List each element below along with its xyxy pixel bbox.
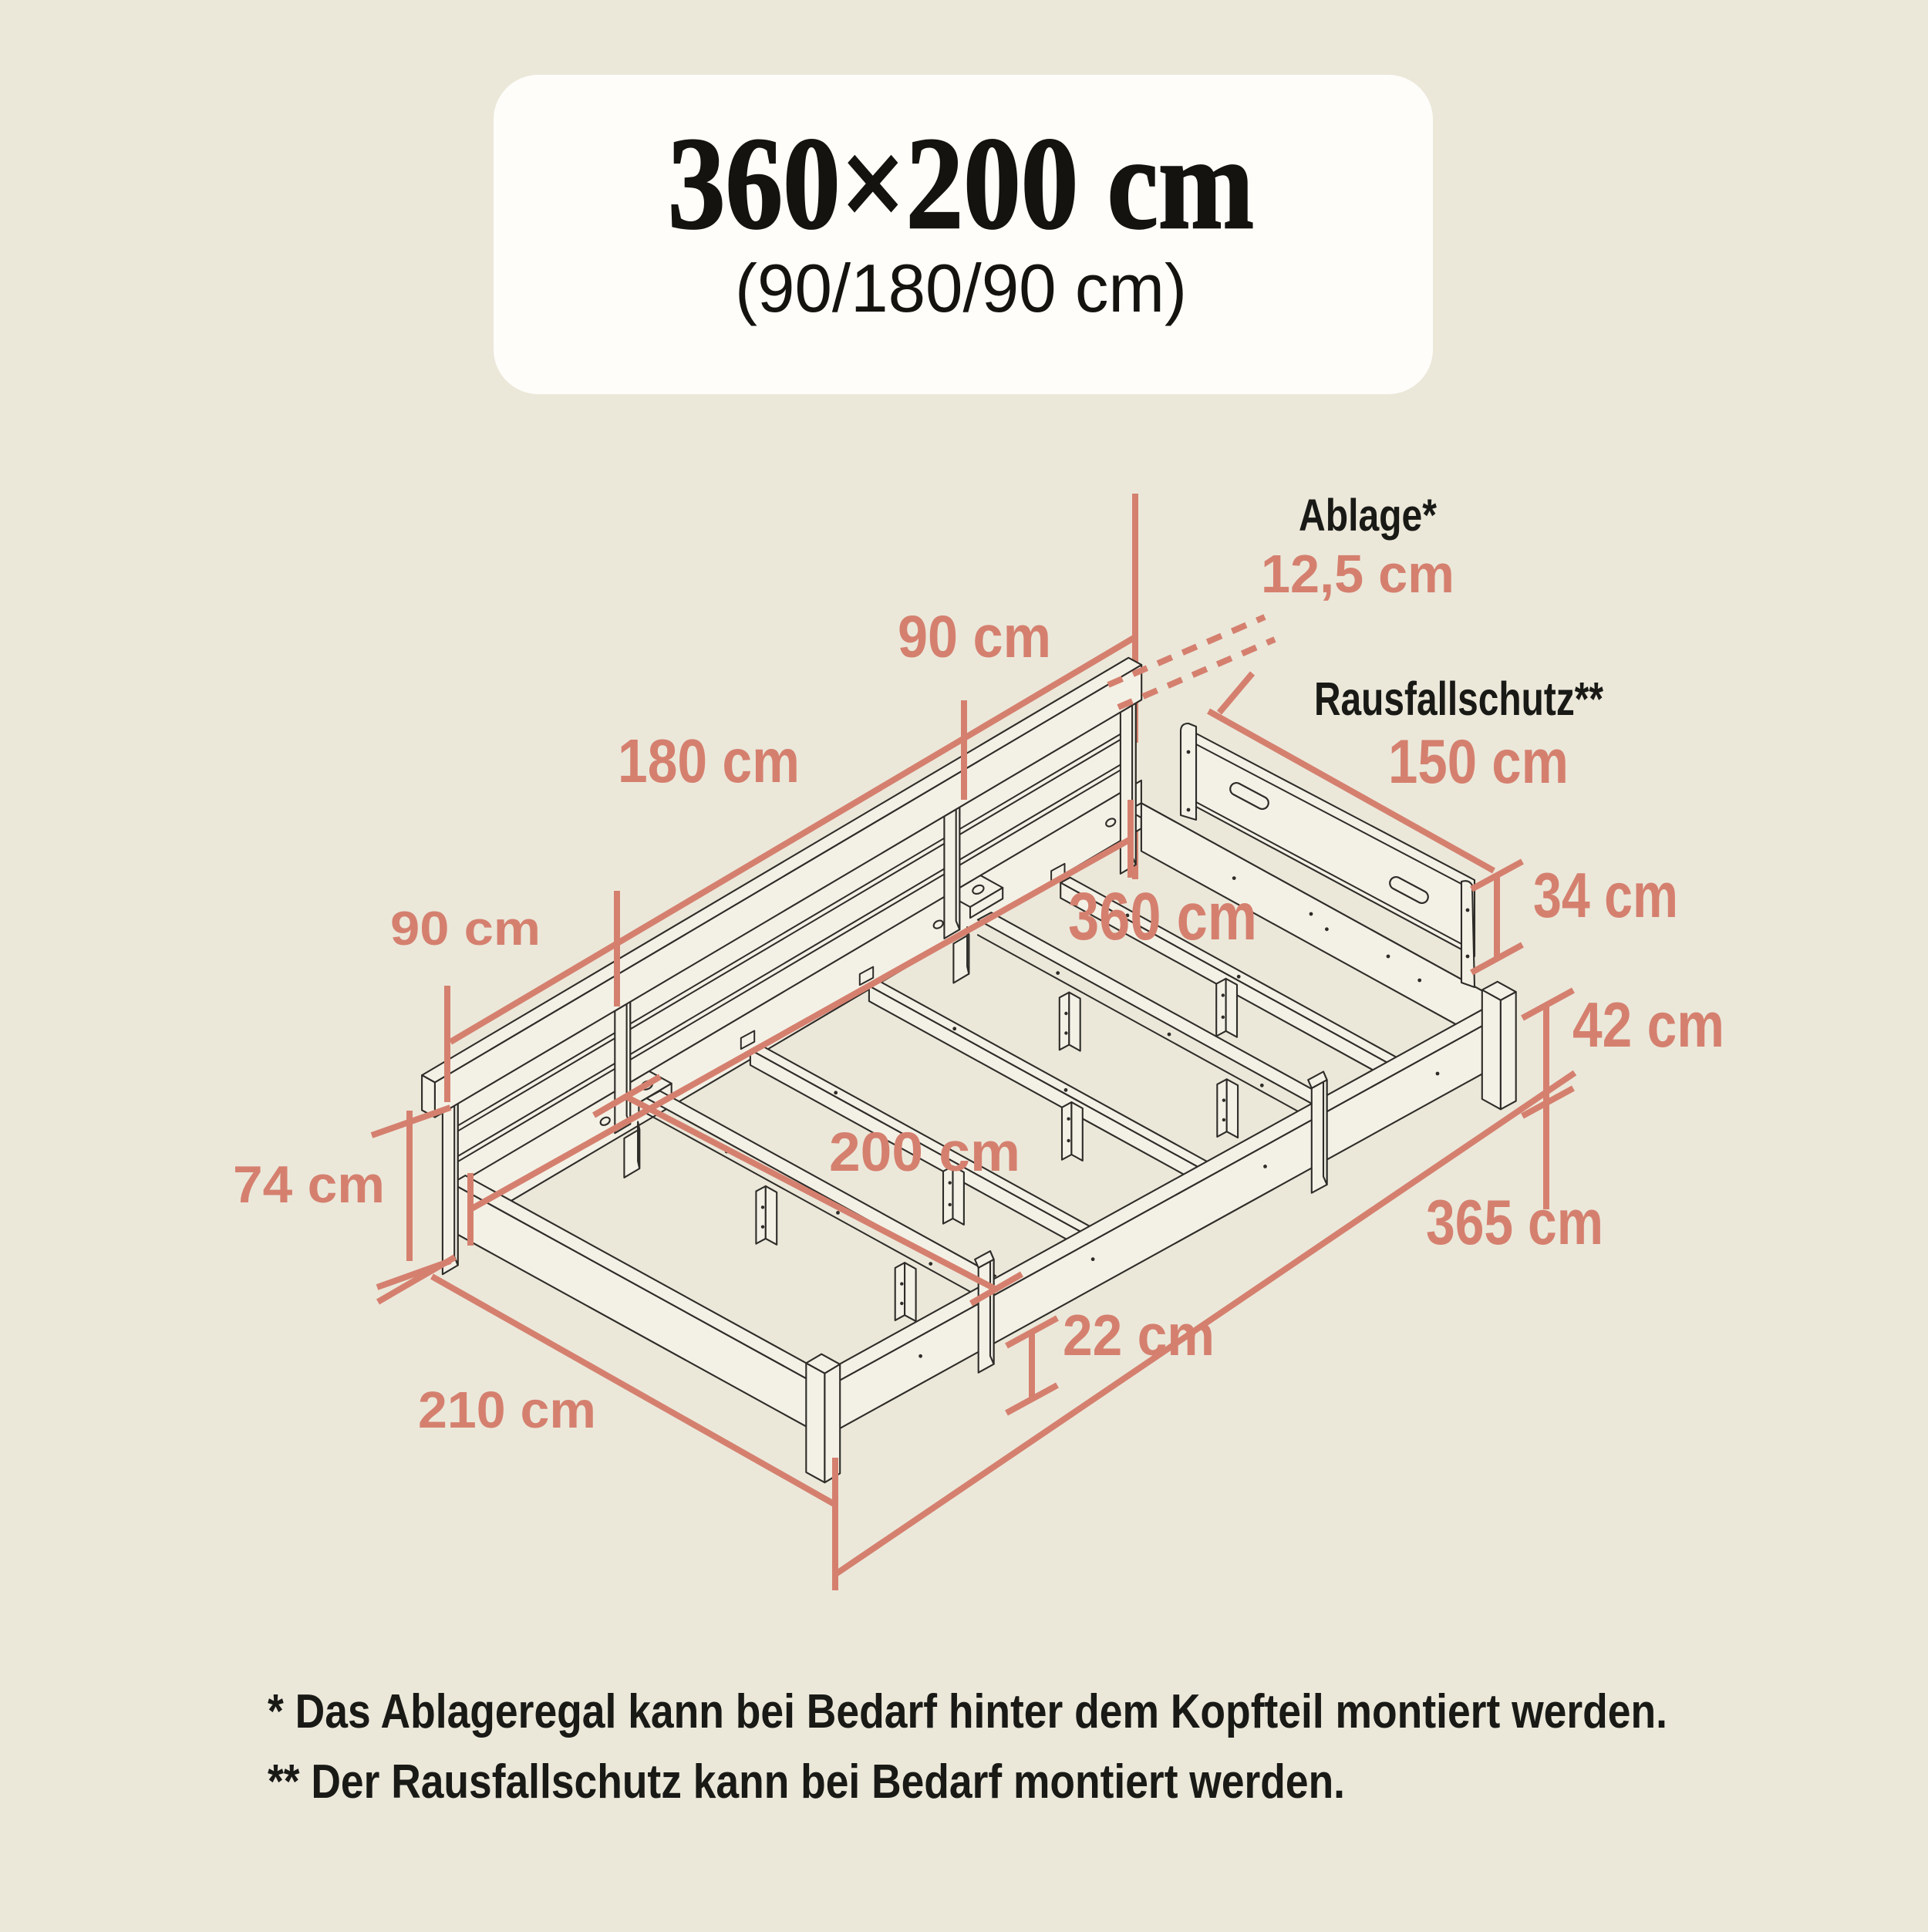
svg-text:** Der Rausfallschutz kann bei: ** Der Rausfallschutz kann bei Bedarf mo… <box>268 1755 1345 1809</box>
svg-text:Rausfallschutz**: Rausfallschutz** <box>1314 673 1603 725</box>
svg-text:360×200 cm: 360×200 cm <box>668 110 1254 256</box>
svg-text:180 cm: 180 cm <box>618 727 800 795</box>
svg-text:90 cm: 90 cm <box>898 604 1051 670</box>
svg-text:360 cm: 360 cm <box>1068 879 1257 954</box>
svg-text:90 cm: 90 cm <box>390 902 541 956</box>
svg-text:210 cm: 210 cm <box>418 1381 596 1439</box>
svg-text:12,5 cm: 12,5 cm <box>1261 544 1454 604</box>
svg-text:Ablage*: Ablage* <box>1299 491 1437 541</box>
svg-text:22 cm: 22 cm <box>1063 1303 1215 1367</box>
svg-text:150 cm: 150 cm <box>1388 727 1569 797</box>
svg-text:(90/180/90 cm): (90/180/90 cm) <box>735 250 1187 326</box>
svg-text:200 cm: 200 cm <box>829 1122 1020 1183</box>
svg-text:34 cm: 34 cm <box>1533 859 1678 931</box>
svg-text:* Das Ablageregal kann bei Bed: * Das Ablageregal kann bei Bedarf hinter… <box>268 1685 1667 1738</box>
svg-text:365 cm: 365 cm <box>1426 1186 1603 1258</box>
svg-text:42 cm: 42 cm <box>1572 989 1724 1060</box>
svg-text:74 cm: 74 cm <box>233 1155 385 1214</box>
